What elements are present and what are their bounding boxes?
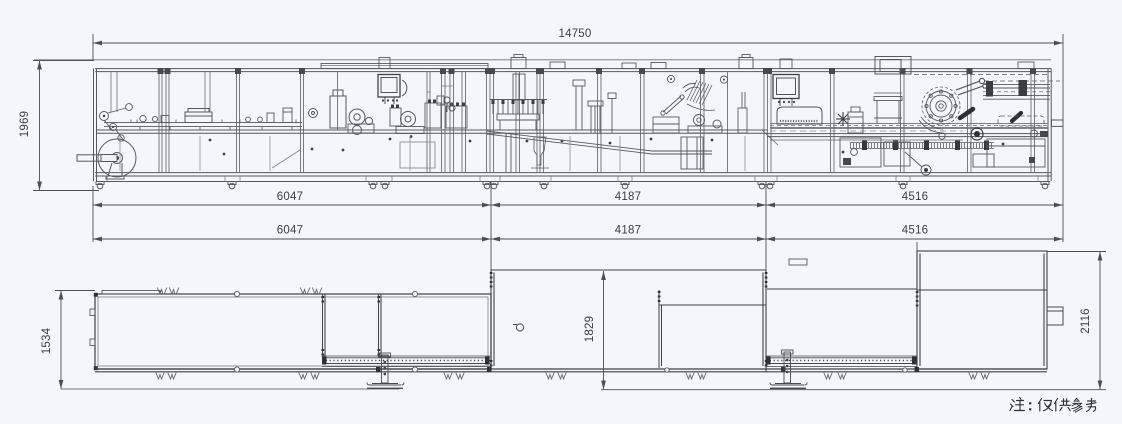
svg-text:4516: 4516	[902, 191, 928, 203]
svg-text:6047: 6047	[277, 191, 303, 203]
svg-text:2116: 2116	[1080, 308, 1092, 334]
svg-text:1969: 1969	[19, 111, 31, 137]
svg-text:4187: 4187	[615, 225, 641, 237]
svg-text:6047: 6047	[277, 225, 303, 237]
svg-text:4516: 4516	[902, 225, 928, 237]
svg-text:1829: 1829	[584, 316, 596, 342]
svg-text:1534: 1534	[41, 327, 53, 354]
svg-text:14750: 14750	[559, 28, 592, 40]
svg-text:4187: 4187	[615, 191, 641, 203]
